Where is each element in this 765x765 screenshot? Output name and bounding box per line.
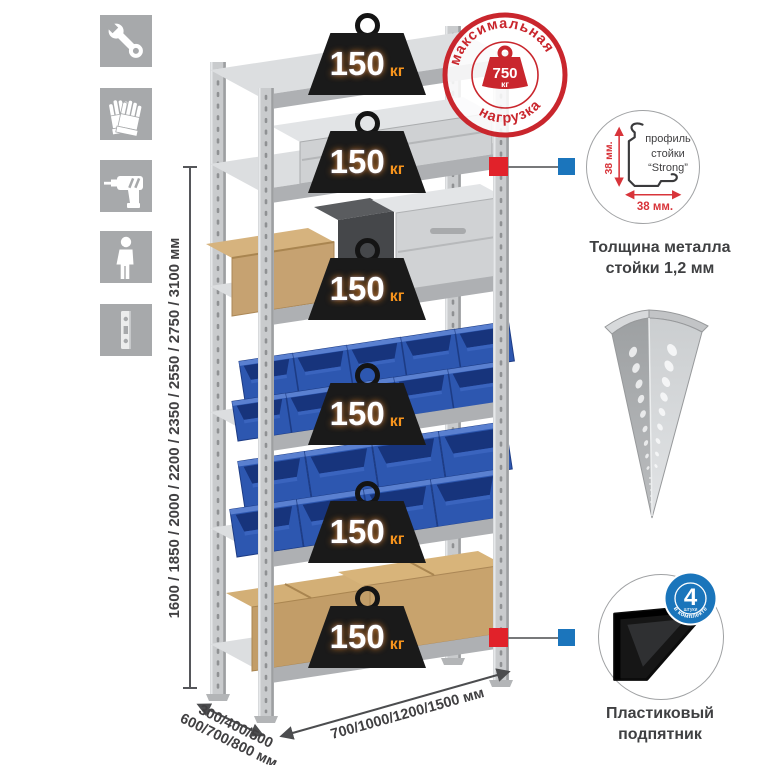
max-load-stamp: максимальная нагрузка 750 кг <box>438 8 572 142</box>
profile-label-line3: “Strong” <box>639 161 697 176</box>
weight-unit: кг <box>390 413 405 431</box>
bottom-connector-line <box>500 637 562 639</box>
weight-value: 150 <box>330 513 385 551</box>
shelf-weight-1: 150кг <box>308 13 426 95</box>
height-dimension-label: 1600 / 1850 / 2000 / 2200 / 2350 / 2550 … <box>166 198 186 658</box>
foot-caption-line2: подпятник <box>585 725 735 746</box>
profile-label-line1: профиль <box>639 132 697 147</box>
profile-width-dim: 38 мм. <box>623 201 687 213</box>
corner-post-illustration <box>605 310 708 518</box>
top-connector-line <box>500 166 562 168</box>
foot-caption-line1: Пластиковый <box>585 704 735 725</box>
post-profile-detail: 38 мм. 38 мм. профиль стойки “Strong” <box>586 110 700 224</box>
weight-unit: кг <box>390 636 405 654</box>
profile-height-dim: 38 мм. <box>603 131 615 185</box>
profile-caption-line2: стойки 1,2 мм <box>570 259 750 280</box>
weight-unit: кг <box>390 161 405 179</box>
weight-unit: кг <box>390 63 405 81</box>
weight-unit: кг <box>390 531 405 549</box>
stamp-unit: кг <box>501 79 509 89</box>
shelf-weight-2: 150кг <box>308 111 426 193</box>
shelf-weight-5: 150кг <box>308 481 426 563</box>
shelf-weight-6: 150кг <box>308 586 426 668</box>
badge-unit: штуки <box>684 607 698 613</box>
shelf-weight-4: 150кг <box>308 363 426 445</box>
top-blue-marker <box>558 158 575 175</box>
weight-value: 150 <box>330 395 385 433</box>
profile-label: профиль стойки “Strong” <box>639 132 697 176</box>
weight-value: 150 <box>330 618 385 656</box>
weight-value: 150 <box>330 270 385 308</box>
weight-value: 150 <box>330 143 385 181</box>
product-infographic: 150кг 150кг 150кг 150кг 150кг 150кг макс… <box>0 0 765 765</box>
weight-value: 150 <box>330 45 385 83</box>
top-red-marker <box>489 157 508 176</box>
weight-unit: кг <box>390 288 405 306</box>
profile-label-line2: стойки <box>639 147 697 162</box>
bottom-red-marker <box>489 628 508 647</box>
profile-caption-line1: Толщина металла <box>570 238 750 259</box>
shelf-weight-3: 150кг <box>308 238 426 320</box>
profile-caption: Толщина металла стойки 1,2 мм <box>570 238 750 280</box>
foot-caption: Пластиковый подпятник <box>585 704 735 746</box>
included-count-badge: 4 штуки в комплекте <box>663 571 718 626</box>
bottom-blue-marker <box>558 629 575 646</box>
